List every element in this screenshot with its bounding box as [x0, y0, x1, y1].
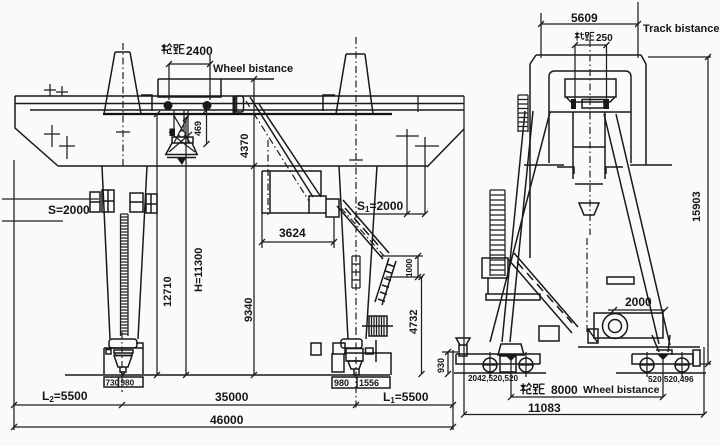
svg-text:L1=5500: L1=5500: [383, 390, 429, 405]
svg-text:15903: 15903: [691, 191, 703, 222]
svg-text:730: 730: [106, 379, 120, 388]
svg-text:250: 250: [596, 33, 613, 44]
svg-text:469: 469: [193, 121, 203, 136]
svg-text:1000: 1000: [405, 258, 414, 277]
svg-text:H=11300: H=11300: [193, 248, 205, 292]
svg-text:46000: 46000: [210, 413, 244, 427]
svg-text:980: 980: [121, 379, 135, 388]
svg-text:4732: 4732: [408, 310, 420, 334]
svg-text:8000: 8000: [551, 383, 578, 397]
svg-text:2400: 2400: [186, 44, 213, 58]
svg-text:Track bistance: Track bistance: [643, 23, 719, 35]
svg-text:35000: 35000: [215, 390, 249, 404]
svg-text:520,520,496: 520,520,496: [648, 375, 694, 384]
svg-text:1556: 1556: [359, 378, 379, 388]
svg-text:L2=5500: L2=5500: [42, 389, 88, 404]
svg-text:12710: 12710: [162, 276, 174, 307]
svg-text:2000: 2000: [625, 295, 652, 309]
svg-text:4370: 4370: [239, 134, 251, 158]
svg-text:980: 980: [334, 378, 349, 388]
svg-text:930: 930: [436, 358, 446, 373]
svg-text:5609: 5609: [571, 11, 598, 25]
svg-text:9340: 9340: [243, 298, 255, 322]
svg-text:S=2000: S=2000: [48, 203, 90, 217]
svg-text:S1=2000: S1=2000: [357, 199, 403, 214]
svg-text:Wheel bistance: Wheel bistance: [213, 63, 293, 75]
svg-text:11083: 11083: [528, 401, 561, 415]
svg-text:Wheel bistance: Wheel bistance: [583, 384, 660, 396]
svg-text:3624: 3624: [279, 226, 306, 240]
